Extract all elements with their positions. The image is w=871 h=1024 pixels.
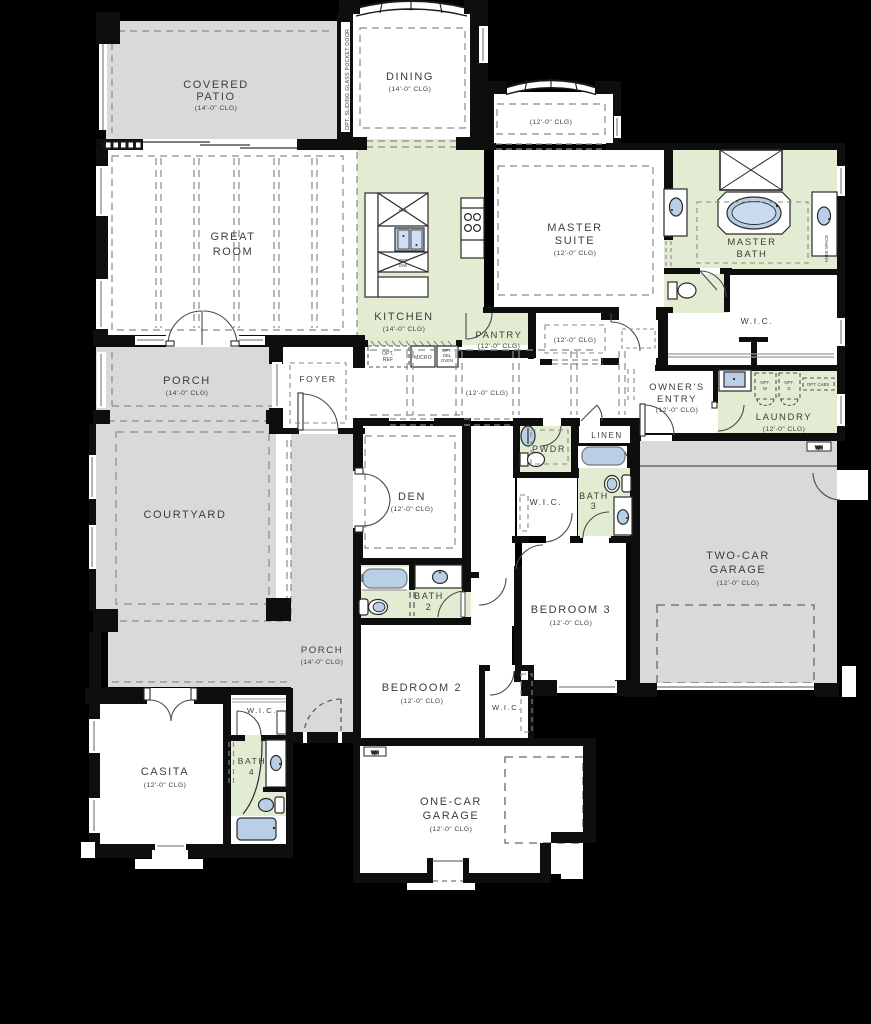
- svg-text:BATH: BATH: [414, 591, 444, 601]
- svg-text:(12'-0" CLG): (12'-0" CLG): [401, 698, 444, 705]
- svg-text:BATH: BATH: [238, 756, 266, 766]
- svg-text:ENTRY: ENTRY: [657, 394, 697, 405]
- svg-text:COVERED: COVERED: [183, 79, 249, 91]
- svg-text:(12'-0" CLG): (12'-0" CLG): [478, 343, 521, 350]
- svg-text:CASITA: CASITA: [141, 766, 190, 778]
- svg-text:MICRO: MICRO: [414, 355, 432, 361]
- svg-text:PORCH: PORCH: [163, 375, 211, 387]
- svg-text:OPT.: OPT.: [784, 380, 794, 385]
- svg-text:(12'-0" CLG): (12'-0" CLG): [550, 620, 593, 627]
- svg-text:(12'-0" CLG): (12'-0" CLG): [554, 337, 597, 344]
- svg-text:(14'-0" CLG): (14'-0" CLG): [195, 105, 238, 112]
- svg-text:(14'-0" CLG): (14'-0" CLG): [166, 390, 209, 397]
- svg-text:KITCHEN: KITCHEN: [374, 311, 433, 323]
- svg-text:(14'-0" CLG): (14'-0" CLG): [389, 86, 432, 93]
- svg-text:LINEN: LINEN: [591, 431, 623, 440]
- svg-text:BATH: BATH: [736, 249, 767, 260]
- svg-text:ROOM: ROOM: [213, 246, 254, 258]
- svg-text:SUITE: SUITE: [555, 235, 595, 247]
- svg-text:BATH: BATH: [579, 491, 609, 501]
- svg-text:KNEE SPACE: KNEE SPACE: [824, 235, 829, 262]
- svg-text:(12'-0" CLG): (12'-0" CLG): [763, 426, 806, 433]
- svg-text:3: 3: [591, 501, 598, 511]
- svg-text:4: 4: [249, 767, 255, 777]
- svg-text:TWO-CAR: TWO-CAR: [706, 550, 770, 562]
- svg-text:WH: WH: [815, 445, 822, 450]
- svg-text:PORCH: PORCH: [301, 645, 343, 656]
- svg-text:GREAT: GREAT: [210, 231, 255, 243]
- svg-text:PANTRY: PANTRY: [475, 330, 522, 341]
- svg-text:(12'-0" CLG): (12'-0" CLG): [717, 580, 760, 587]
- svg-text:W.I.C.: W.I.C.: [741, 316, 774, 326]
- svg-text:(12'-0" CLG): (12'-0" CLG): [391, 506, 434, 513]
- svg-text:COURTYARD: COURTYARD: [143, 509, 226, 521]
- svg-text:BEDROOM 2: BEDROOM 2: [382, 682, 462, 694]
- svg-text:(12'-0" CLG): (12'-0" CLG): [144, 782, 187, 789]
- svg-text:DEN: DEN: [398, 491, 426, 503]
- svg-text:MASTER: MASTER: [547, 222, 602, 234]
- svg-text:WH: WH: [371, 750, 378, 755]
- svg-text:DINING: DINING: [386, 71, 434, 83]
- svg-text:(14'-0" CLG): (14'-0" CLG): [301, 659, 344, 666]
- svg-text:W.I.C.: W.I.C.: [530, 497, 563, 507]
- svg-text:W.I.C.: W.I.C.: [492, 703, 522, 712]
- svg-text:MASTER: MASTER: [727, 237, 776, 248]
- svg-text:D/W: D/W: [399, 263, 408, 268]
- svg-text:(14'-0" CLG): (14'-0" CLG): [383, 326, 426, 333]
- svg-text:(12'-0" CLG): (12'-0" CLG): [656, 407, 699, 414]
- svg-text:W.I.C.: W.I.C.: [247, 706, 277, 715]
- svg-text:LAUNDRY: LAUNDRY: [756, 412, 812, 423]
- svg-text:OPT. CABS: OPT. CABS: [807, 382, 830, 387]
- svg-text:PATIO: PATIO: [196, 91, 235, 103]
- svg-text:GARAGE: GARAGE: [423, 810, 480, 822]
- svg-text:D: D: [787, 386, 790, 391]
- svg-text:OVEN: OVEN: [441, 358, 453, 363]
- svg-text:OPT. SLIDING GLASS POCKET DOOR: OPT. SLIDING GLASS POCKET DOOR: [345, 29, 351, 130]
- svg-text:OPT.: OPT.: [760, 380, 770, 385]
- svg-text:BEDROOM 3: BEDROOM 3: [531, 604, 611, 616]
- svg-text:FOYER: FOYER: [299, 374, 336, 384]
- svg-text:ONE-CAR: ONE-CAR: [420, 796, 482, 808]
- svg-text:(12'-0" CLG): (12'-0" CLG): [530, 119, 573, 126]
- svg-text:(12'-0" CLG): (12'-0" CLG): [554, 250, 597, 257]
- svg-text:(12'-0" CLG): (12'-0" CLG): [430, 826, 473, 833]
- svg-text:REF: REF: [383, 357, 394, 363]
- svg-text:D/W: D/W: [399, 208, 408, 213]
- svg-text:GARAGE: GARAGE: [710, 564, 767, 576]
- svg-text:(12'-0" CLG): (12'-0" CLG): [466, 390, 509, 397]
- svg-text:2: 2: [426, 602, 433, 612]
- svg-text:OWNER'S: OWNER'S: [649, 382, 705, 393]
- svg-text:PWDR: PWDR: [532, 444, 566, 454]
